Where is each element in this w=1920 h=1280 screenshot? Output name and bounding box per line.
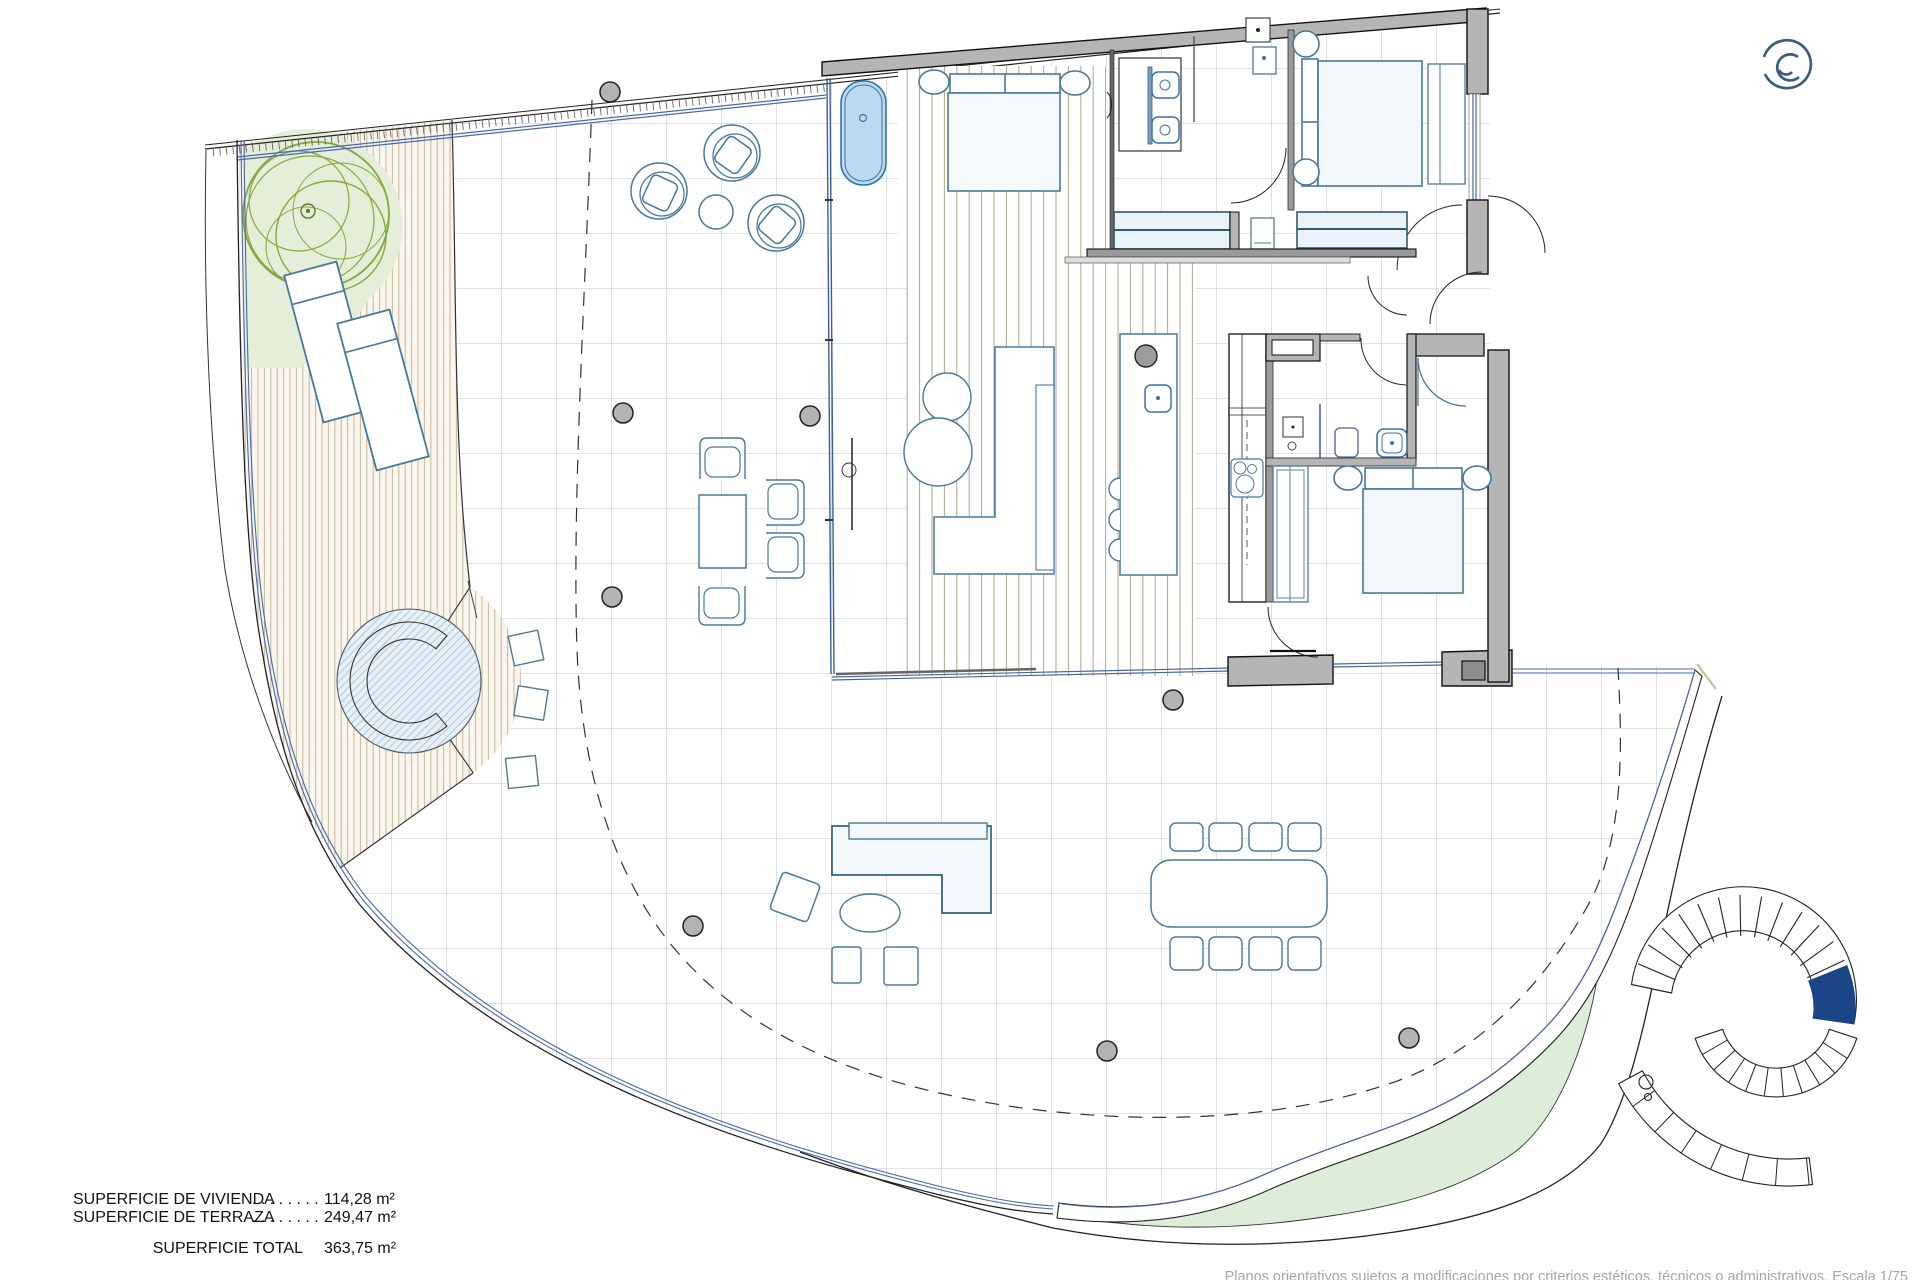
svg-text:SUPERFICIE DE TERRAZA: SUPERFICIE DE TERRAZA xyxy=(73,1209,275,1226)
svg-text:SUPERFICIE DE VIVIENDA: SUPERFICIE DE VIVIENDA xyxy=(73,1191,275,1208)
svg-text:114,28 m²: 114,28 m² xyxy=(324,1191,396,1208)
svg-text:. . . . . . . .: . . . . . . . . xyxy=(252,1209,319,1226)
svg-text:SUPERFICIE TOTAL: SUPERFICIE TOTAL xyxy=(153,1240,303,1257)
svg-text:249,47 m²: 249,47 m² xyxy=(324,1209,397,1226)
svg-text:Planos orientativos sujetos a: Planos orientativos sujetos a modificaci… xyxy=(1225,1269,1908,1280)
svg-text:. . . . . . . .: . . . . . . . . xyxy=(252,1191,319,1208)
svg-text:363,75 m²: 363,75 m² xyxy=(324,1240,397,1257)
